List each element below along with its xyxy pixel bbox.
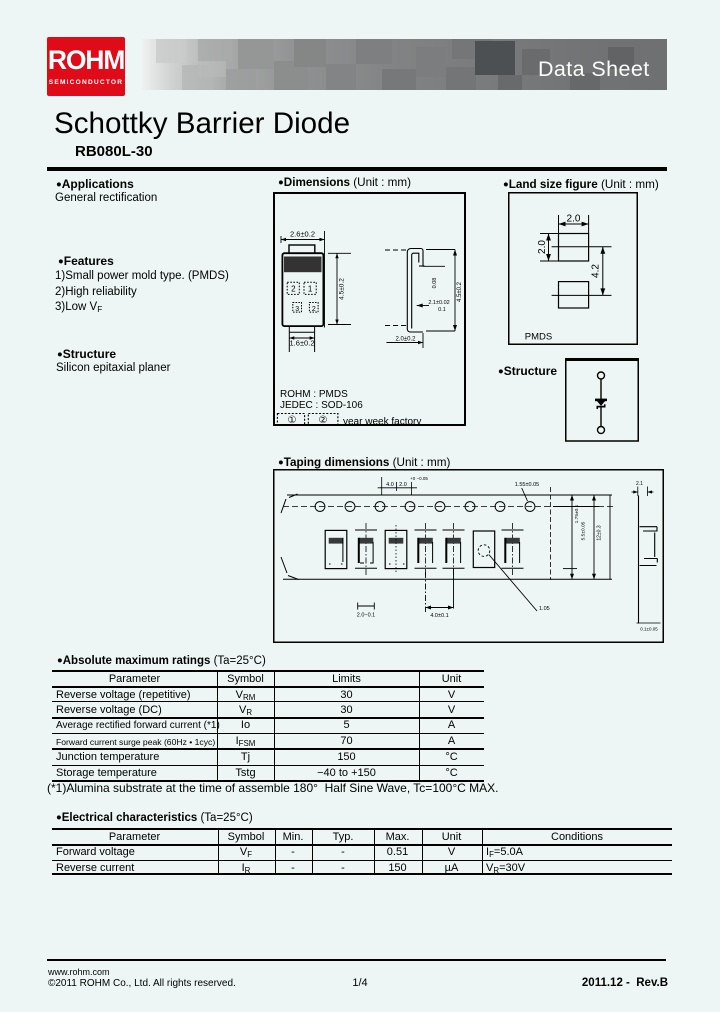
svg-text:1.6±0.2: 1.6±0.2 (290, 339, 315, 348)
svg-text:2.6±0.2: 2.6±0.2 (290, 230, 315, 239)
svg-text:2.1±0.02: 2.1±0.02 (428, 300, 449, 306)
svg-text:4.5±0.2: 4.5±0.2 (457, 281, 463, 302)
svg-text:1: 1 (308, 285, 313, 294)
svg-text:3: 3 (295, 306, 299, 313)
svg-text:2.0±0.2: 2.0±0.2 (396, 337, 417, 343)
svg-text:4.2: 4.2 (591, 264, 602, 278)
svg-text:2: 2 (291, 285, 296, 294)
svg-text:year week factory: year week factory (343, 417, 421, 427)
svg-text:4.5±0.2: 4.5±0.2 (339, 278, 346, 300)
svg-text:PMDS: PMDS (525, 332, 552, 343)
svg-text:②: ② (319, 415, 328, 426)
svg-text:ROHM : PMDS: ROHM : PMDS (280, 389, 348, 400)
svg-text:+0 −0.05: +0 −0.05 (410, 476, 428, 481)
svg-text:1.75±0.1: 1.75±0.1 (574, 504, 580, 523)
svg-text:0.1: 0.1 (438, 307, 446, 313)
svg-text:0.1±0.05: 0.1±0.05 (640, 627, 658, 632)
svg-text:2.0: 2.0 (537, 240, 548, 254)
svg-text:4.0: 4.0 (386, 482, 394, 488)
svg-text:12±0.3: 12±0.3 (597, 525, 603, 540)
svg-text:4.0±0.1: 4.0±0.1 (430, 613, 448, 619)
svg-text:1.05: 1.05 (539, 606, 550, 612)
svg-text:2: 2 (312, 306, 316, 313)
svg-text:2.0: 2.0 (567, 214, 581, 225)
svg-text:1.55±0.05: 1.55±0.05 (515, 482, 539, 488)
svg-text:2.0: 2.0 (399, 482, 407, 488)
svg-text:2.1: 2.1 (636, 481, 643, 487)
svg-text:0.08: 0.08 (432, 278, 438, 289)
svg-text:JEDEC : SOD-106: JEDEC : SOD-106 (280, 400, 363, 411)
svg-text:5.5±0.05: 5.5±0.05 (581, 521, 587, 540)
svg-text:2.0−0.1: 2.0−0.1 (357, 613, 376, 619)
svg-text:①: ① (288, 415, 297, 426)
